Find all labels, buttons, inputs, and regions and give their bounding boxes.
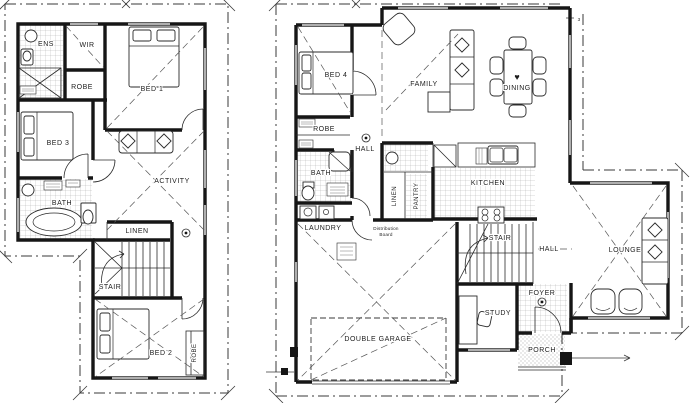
room-label-robe-bed2: ROBE — [192, 343, 198, 362]
room-label-bed3: BED 3 — [47, 140, 70, 147]
annotation-distribution-board-line1: Distribution — [373, 226, 399, 231]
lounge-furniture — [591, 218, 668, 314]
laundry-fixtures — [300, 206, 334, 219]
ground-floor-plan: BED 4 ROBE FAMILY ♥ DINING HALL BATH LAU… — [266, 0, 689, 403]
dining-heart-symbol: ♥ — [514, 72, 519, 82]
room-label-laundry: LAUNDRY — [305, 225, 342, 232]
floor-plan-drawing: ENS WIR BED 1 ROBE BED 3 ACTIVITY BATH L… — [0, 0, 690, 403]
room-label-bath-upper: BATH — [52, 200, 72, 207]
room-label-stair-ground: STAIR — [489, 235, 512, 242]
room-label-dining: DINING — [503, 85, 531, 92]
room-label-hall-lower: HALL — [539, 246, 559, 253]
room-label-study: STUDY — [485, 310, 511, 317]
room-label-hall-upper: HALL — [355, 146, 375, 153]
smoke-detector-icon — [182, 229, 190, 237]
room-label-stair-upper: STAIR — [99, 284, 122, 291]
room-label-bath-ground: BATH — [311, 170, 331, 177]
family-furniture — [381, 11, 474, 112]
room-label-family: FAMILY — [410, 81, 437, 88]
room-label-bed4: BED 4 — [325, 72, 348, 79]
room-label-activity: ACTIVITY — [154, 178, 190, 185]
room-label-kitchen: KITCHEN — [471, 180, 505, 187]
room-label-bed1: BED 1 — [141, 86, 164, 93]
bed3-symbol — [21, 112, 73, 160]
room-label-ens: ENS — [38, 41, 54, 48]
floor-plan-sheet: ENS WIR BED 1 ROBE BED 3 ACTIVITY BATH L… — [0, 0, 690, 403]
room-label-pantry: PANTRY — [414, 183, 420, 210]
study-furniture — [459, 296, 492, 344]
annotation-distribution-board-line2: Board — [379, 232, 393, 237]
room-label-garage: DOUBLE GARAGE — [344, 336, 411, 343]
room-label-wir: WIR — [79, 42, 94, 49]
room-label-linen-upper: LINEN — [125, 228, 148, 235]
room-label-lounge: LOUNGE — [609, 247, 642, 254]
dimension-text-3: 3 — [578, 17, 581, 22]
bed1-symbol — [129, 27, 179, 87]
room-label-linen-ground: LINEN — [392, 186, 398, 206]
upper-floor-plan: ENS WIR BED 1 ROBE BED 3 ACTIVITY BATH L… — [0, 0, 235, 400]
room-label-foyer: FOYER — [529, 290, 556, 297]
room-label-bed2: BED 2 — [150, 350, 173, 357]
bed2-symbol — [97, 309, 149, 359]
room-label-robe-wir: ROBE — [71, 84, 93, 91]
room-label-robe-bed4: ROBE — [313, 126, 335, 133]
activity-sofa-symbol — [119, 131, 173, 153]
stairs-ground — [457, 224, 533, 284]
room-label-porch: PORCH — [528, 347, 556, 354]
